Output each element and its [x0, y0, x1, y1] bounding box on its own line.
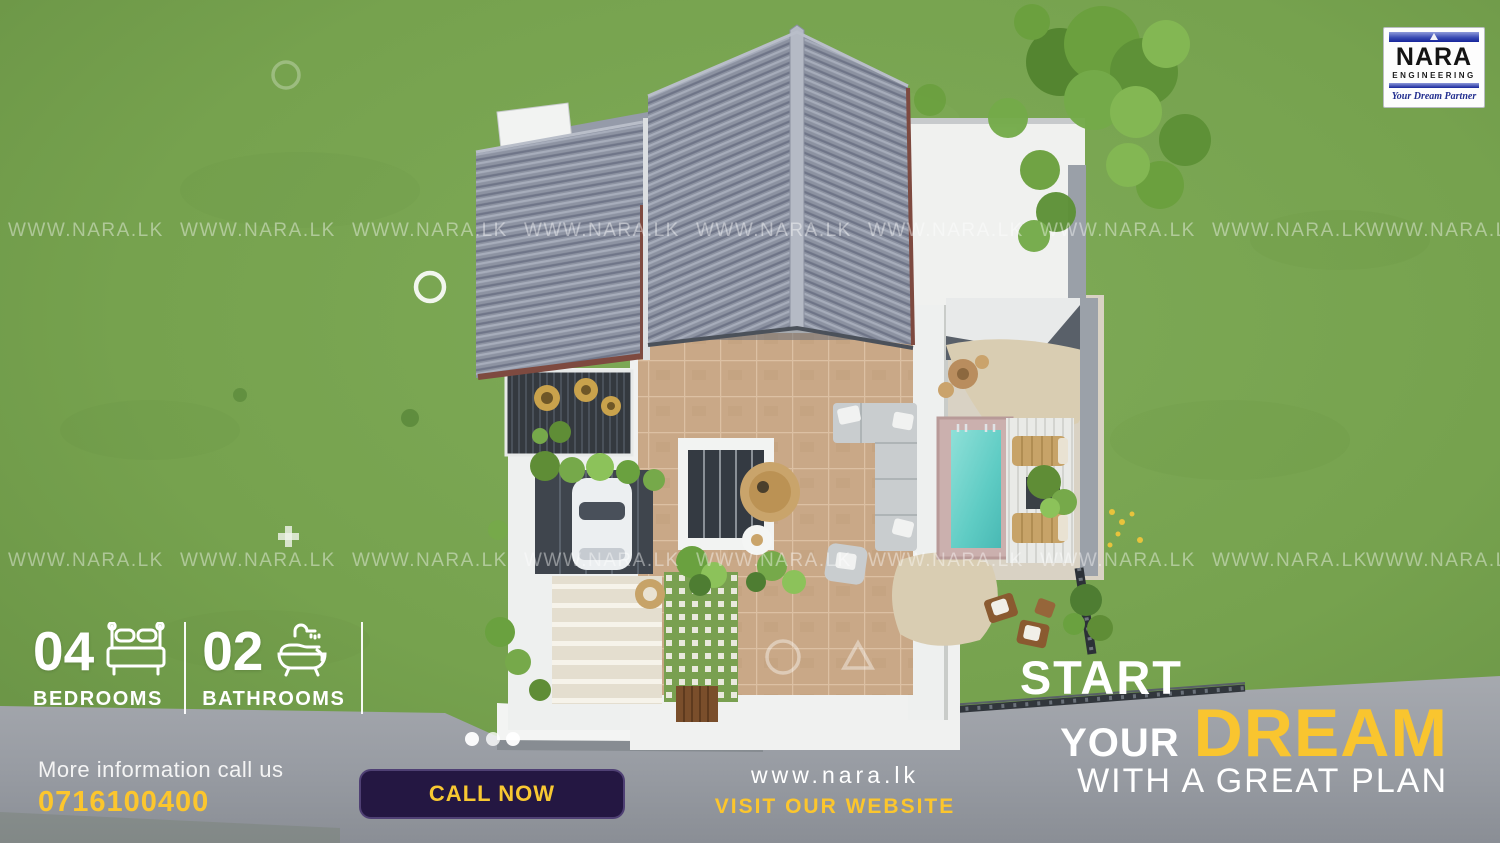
logo-blue-bar-2 — [1389, 83, 1479, 88]
logo-blue-bar — [1389, 32, 1479, 42]
bed-icon — [104, 622, 168, 680]
contact-block: More information call us 0716100400 — [38, 757, 284, 819]
dots-trio — [465, 732, 520, 746]
bedrooms-count: 04 — [33, 624, 94, 679]
stat-bathrooms: 02 BATHROOMS — [202, 620, 345, 714]
logo-name: NARA — [1389, 44, 1479, 70]
headline-your: YOUR — [1060, 721, 1180, 766]
headline-your-dream: YOUR DREAM — [1060, 694, 1448, 772]
stats-divider — [184, 622, 186, 714]
logo-tagline: Your Dream Partner — [1389, 91, 1479, 102]
logo-arrow-icon — [1430, 33, 1438, 40]
bedrooms-label: BEDROOMS — [33, 688, 168, 711]
stats-divider — [361, 622, 363, 714]
bathtub-icon — [273, 622, 331, 680]
bathrooms-count: 02 — [202, 624, 263, 679]
headline-dream: DREAM — [1194, 694, 1448, 772]
logo-subtitle: ENGINEERING — [1389, 71, 1479, 80]
headline-tagline: WITH A GREAT PLAN — [1077, 762, 1448, 801]
stat-bedrooms: 04 BEDROOMS — [33, 620, 168, 714]
website-url: www.nara.lk — [660, 762, 1010, 789]
call-now-label: CALL NOW — [429, 781, 555, 807]
contact-info-label: More information call us — [38, 757, 284, 783]
website-cta[interactable]: VISIT OUR WEBSITE — [660, 795, 1010, 819]
call-now-button[interactable]: CALL NOW — [359, 769, 625, 819]
stats-block: 04 BEDROOMS 02 — [33, 620, 379, 714]
logo-card: NARA ENGINEERING Your Dream Partner — [1383, 27, 1485, 108]
poster: WWW.NARA.LKWWW.NARA.LKWWW.NARA.LKWWW.NAR… — [0, 0, 1500, 843]
bathrooms-label: BATHROOMS — [202, 688, 345, 711]
website-block: www.nara.lk VISIT OUR WEBSITE — [660, 762, 1010, 819]
phone-number: 0716100400 — [38, 786, 284, 819]
